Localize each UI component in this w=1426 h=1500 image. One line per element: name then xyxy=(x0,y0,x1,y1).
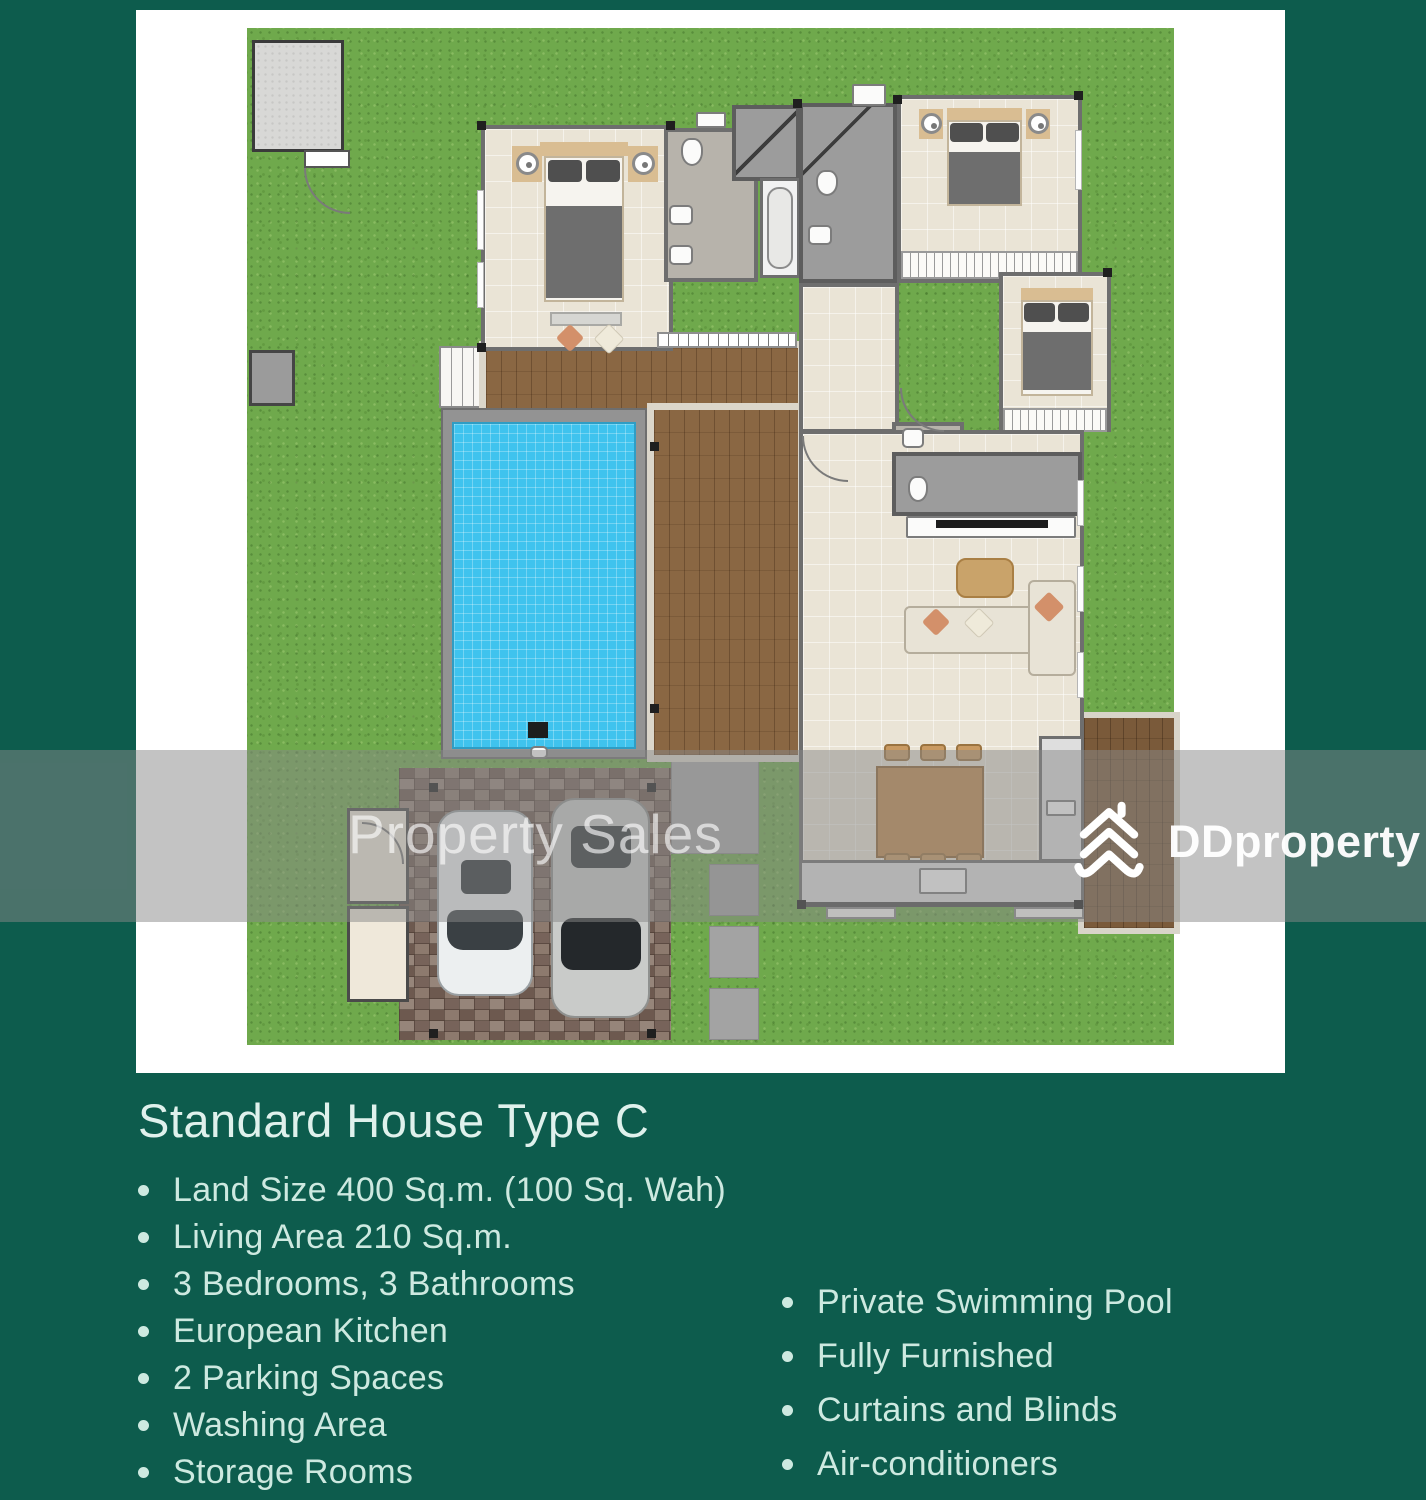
window xyxy=(477,190,484,250)
corner-marker xyxy=(793,99,802,108)
bed2-duvet xyxy=(949,152,1020,204)
toilet xyxy=(816,170,838,196)
bullet-dot xyxy=(138,1373,149,1384)
bullet-dot xyxy=(138,1467,149,1478)
utility-pad xyxy=(249,350,295,406)
bullet-dot xyxy=(782,1351,793,1362)
bullet-dot xyxy=(138,1185,149,1196)
features-list-right: Private Swimming Pool Fully Furnished Cu… xyxy=(782,1275,1173,1491)
bed3-pillow xyxy=(1058,303,1089,322)
bedside-lamp xyxy=(516,152,539,175)
corner-marker xyxy=(666,121,675,130)
window xyxy=(477,262,484,308)
feature-text: 2 Parking Spaces xyxy=(173,1359,444,1398)
feature-item: Land Size 400 Sq.m. (100 Sq. Wah) xyxy=(138,1167,726,1214)
pool-entry-steps xyxy=(439,346,481,408)
bed1-bench xyxy=(550,312,622,326)
bed1-duvet xyxy=(546,206,622,298)
stepping-stone xyxy=(709,988,759,1040)
feature-text: Living Area 210 Sq.m. xyxy=(173,1218,512,1257)
window xyxy=(1077,566,1084,612)
corner-marker xyxy=(1103,268,1112,277)
bed3-duvet xyxy=(1023,332,1091,390)
ac-unit xyxy=(696,112,726,128)
corner-marker xyxy=(477,343,486,352)
feature-text: Storage Rooms xyxy=(173,1453,413,1492)
sink xyxy=(669,245,693,265)
ddproperty-logo-icon xyxy=(1064,795,1154,890)
bedside-lamp xyxy=(921,113,942,134)
corner-marker xyxy=(1074,91,1083,100)
bed1-headboard xyxy=(540,142,628,156)
bathtub xyxy=(767,187,793,269)
feature-item: 3 Bedrooms, 3 Bathrooms xyxy=(138,1261,726,1308)
pool-drain xyxy=(528,722,548,738)
page-title: Standard House Type C xyxy=(138,1093,649,1148)
feature-text: 3 Bedrooms, 3 Bathrooms xyxy=(173,1265,575,1304)
feature-item: Fully Furnished xyxy=(782,1329,1173,1383)
wardrobe-bedroom-3 xyxy=(1003,408,1107,432)
listing-image-page: { "listing_card": { "title": "Standard H… xyxy=(0,0,1426,1500)
bed3-pillow xyxy=(1024,303,1055,322)
sink xyxy=(669,205,693,225)
bed3-headboard xyxy=(1021,288,1093,300)
corner-marker xyxy=(647,1029,656,1038)
car-silver-windshield xyxy=(561,918,641,970)
feature-item: Living Area 210 Sq.m. xyxy=(138,1214,726,1261)
ac-unit xyxy=(852,84,886,106)
feature-item: Washing Area xyxy=(138,1402,726,1449)
bed2-headboard xyxy=(947,108,1022,120)
ddproperty-logo-text: DDproperty xyxy=(1168,816,1421,868)
feature-text: Curtains and Blinds xyxy=(817,1391,1118,1430)
bullet-dot xyxy=(782,1459,793,1470)
window xyxy=(1075,130,1082,190)
feature-text: Fully Furnished xyxy=(817,1337,1054,1376)
window xyxy=(1077,480,1084,526)
features-list-left: Land Size 400 Sq.m. (100 Sq. Wah) Living… xyxy=(138,1167,726,1496)
bathtub-room xyxy=(760,178,800,278)
laundry-sink xyxy=(902,428,924,448)
bedside-lamp xyxy=(1028,113,1049,134)
corner-marker xyxy=(477,121,486,130)
coffee-table xyxy=(956,558,1014,598)
pool-deck-side xyxy=(654,410,798,755)
tv-screen xyxy=(936,520,1048,528)
shower-room xyxy=(732,105,800,181)
swimming-pool xyxy=(452,422,636,749)
sink xyxy=(808,225,832,245)
feature-item: European Kitchen xyxy=(138,1308,726,1355)
feature-text: Air-conditioners xyxy=(817,1445,1058,1484)
stepping-stone xyxy=(709,926,759,978)
feature-text: European Kitchen xyxy=(173,1312,448,1351)
bed2-pillow xyxy=(950,123,983,142)
bed2-pillow xyxy=(986,123,1019,142)
feature-item: 2 Parking Spaces xyxy=(138,1355,726,1402)
bullet-dot xyxy=(138,1232,149,1243)
bullet-dot xyxy=(782,1405,793,1416)
feature-text: Land Size 400 Sq.m. (100 Sq. Wah) xyxy=(173,1171,726,1210)
bedside-lamp xyxy=(632,152,655,175)
corner-marker xyxy=(650,704,659,713)
bullet-dot xyxy=(138,1279,149,1290)
bullet-dot xyxy=(782,1297,793,1308)
window xyxy=(1077,652,1084,698)
window-strip xyxy=(657,332,797,348)
feature-item: Private Swimming Pool xyxy=(782,1275,1173,1329)
bathroom-2 xyxy=(799,103,897,283)
corner-marker xyxy=(429,1029,438,1038)
feature-item: Air-conditioners xyxy=(782,1437,1173,1491)
corner-marker xyxy=(893,95,902,104)
bed1-pillow xyxy=(586,160,620,182)
toilet xyxy=(908,476,928,502)
feature-text: Private Swimming Pool xyxy=(817,1283,1173,1322)
ddproperty-watermark: DDproperty xyxy=(1064,796,1421,888)
feature-text: Washing Area xyxy=(173,1406,387,1445)
feature-item: Curtains and Blinds xyxy=(782,1383,1173,1437)
hallway xyxy=(799,283,899,433)
property-sales-watermark: Property Sales xyxy=(348,802,723,866)
bullet-dot xyxy=(138,1420,149,1431)
storage-shed xyxy=(252,40,344,152)
shed-door xyxy=(304,150,350,168)
bed1-pillow xyxy=(548,160,582,182)
corner-marker xyxy=(650,442,659,451)
toilet xyxy=(681,138,703,166)
bullet-dot xyxy=(138,1326,149,1337)
feature-item: Storage Rooms xyxy=(138,1449,726,1496)
